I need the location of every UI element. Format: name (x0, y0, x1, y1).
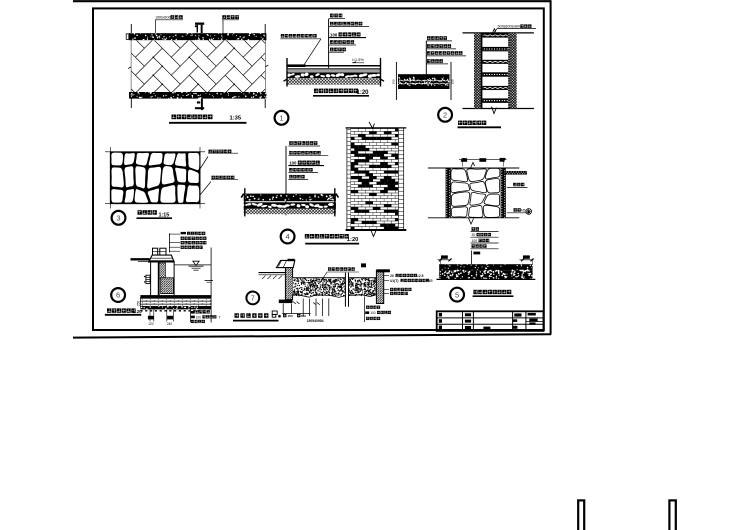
svg-text:i=1.5%: i=1.5% (352, 58, 364, 62)
svg-text:5: 5 (455, 290, 459, 299)
svg-text:2: 2 (443, 111, 447, 120)
svg-text:100: 100 (196, 315, 202, 319)
svg-text:150: 150 (392, 79, 396, 84)
svg-text:100: 100 (289, 161, 297, 166)
svg-text:300x600: 300x600 (156, 15, 172, 20)
svg-text:7: 7 (251, 295, 255, 302)
svg-text:400: 400 (301, 314, 306, 318)
svg-text:U1(T): U1(T) (390, 279, 398, 283)
svg-text:150: 150 (451, 79, 455, 84)
svg-text:150: 150 (288, 314, 293, 318)
svg-text:6: 6 (116, 291, 120, 300)
svg-text:1: 1 (279, 114, 283, 123)
svg-text:1:35: 1:35 (230, 116, 242, 122)
svg-text:1:20: 1:20 (133, 309, 143, 314)
svg-text:M5: M5 (521, 208, 526, 212)
svg-text:100: 100 (330, 32, 338, 37)
svg-text:30: 30 (472, 233, 476, 237)
svg-text:1:2.5: 1:2.5 (416, 274, 424, 278)
svg-text:M5: M5 (428, 279, 433, 283)
svg-text:1:20: 1:20 (357, 90, 370, 96)
svg-text:4: 4 (286, 232, 290, 241)
svg-text:120: 120 (148, 322, 154, 326)
svg-text:3: 3 (116, 214, 120, 223)
svg-text:T: T (219, 315, 221, 319)
svg-text:1:20: 1:20 (347, 237, 359, 243)
svg-text:250: 250 (137, 301, 141, 307)
svg-text:240: 240 (167, 322, 173, 326)
svg-text:600(800)x600: 600(800)x600 (498, 24, 523, 29)
svg-text:150540954: 150540954 (307, 319, 324, 323)
svg-text:100: 100 (472, 239, 478, 243)
svg-text:100: 100 (370, 311, 376, 315)
svg-text:20: 20 (390, 274, 394, 278)
